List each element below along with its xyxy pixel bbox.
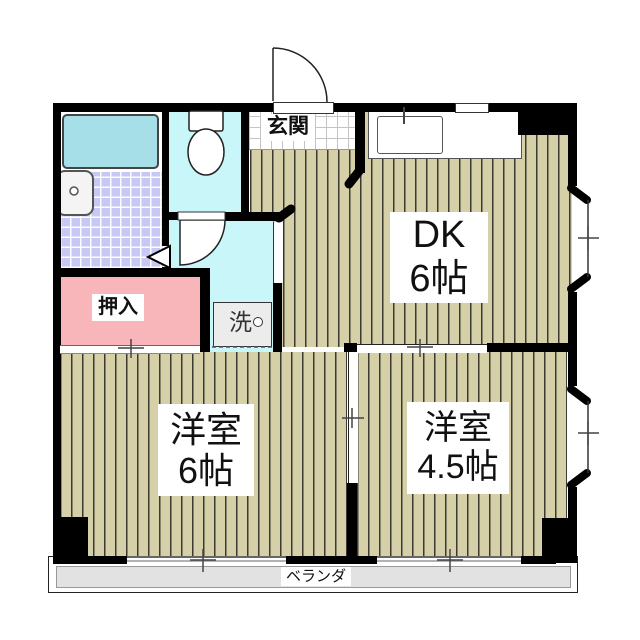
wall bbox=[200, 277, 210, 352]
balcony-window-right bbox=[377, 556, 521, 564]
wall bbox=[162, 112, 169, 246]
toilet-room-floor bbox=[168, 112, 241, 212]
label-room6: 洋室 6帖 bbox=[158, 404, 254, 496]
dk-partition-sliding-door bbox=[357, 344, 487, 353]
wall bbox=[162, 212, 178, 220]
wall bbox=[568, 487, 577, 520]
label-genkan: 玄関 bbox=[261, 114, 315, 141]
wall bbox=[568, 292, 577, 386]
wall bbox=[286, 556, 377, 564]
wall bbox=[53, 103, 273, 112]
wall bbox=[344, 343, 357, 352]
kitchen-sink bbox=[377, 116, 443, 154]
room-divider-sliding-door bbox=[348, 352, 358, 483]
wall bbox=[568, 135, 577, 186]
label-room45: 洋室 4.5帖 bbox=[407, 402, 509, 494]
label-veranda: ベランダ bbox=[281, 567, 351, 586]
label-dk: DK 6帖 bbox=[390, 212, 488, 303]
wall bbox=[53, 268, 210, 277]
closet-sliding-door bbox=[60, 345, 200, 354]
kitchen-window bbox=[455, 103, 489, 113]
balcony-window-left bbox=[127, 556, 286, 564]
wall bbox=[347, 483, 357, 563]
entry-door-icon bbox=[273, 48, 327, 102]
wall bbox=[241, 103, 249, 218]
wall-left bbox=[53, 103, 61, 564]
wall bbox=[225, 212, 282, 221]
label-laundry: 洗 bbox=[224, 307, 268, 337]
wall bbox=[332, 103, 455, 112]
washroom-entry-opening bbox=[273, 222, 284, 283]
wall bbox=[521, 556, 556, 564]
washbasin bbox=[56, 170, 94, 216]
wall bbox=[487, 343, 577, 352]
wall bbox=[273, 283, 282, 352]
genkan-step-line bbox=[249, 149, 357, 150]
label-oshiire: 押入 bbox=[92, 294, 144, 321]
floor-plan: 玄関 DK 6帖 洋室 6帖 洋室 4.5帖 押入 洗 ベランダ bbox=[0, 0, 640, 640]
faucet-circle-icon bbox=[253, 317, 263, 327]
bathtub bbox=[62, 114, 159, 169]
washroom-floor-upper bbox=[168, 219, 273, 270]
wall bbox=[518, 103, 577, 135]
wall bbox=[53, 556, 127, 564]
entry-door-opening bbox=[273, 102, 334, 114]
wall bbox=[355, 103, 365, 173]
kitchen-counter bbox=[368, 110, 522, 159]
